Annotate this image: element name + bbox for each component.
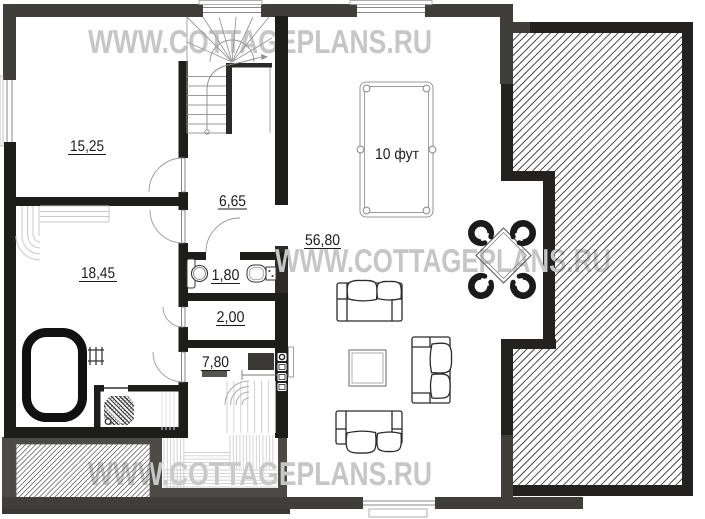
svg-text:6,65: 6,65 [219, 193, 246, 210]
svg-text:1,80: 1,80 [212, 267, 240, 284]
svg-text:15,25: 15,25 [70, 138, 104, 155]
svg-text:10 фут: 10 фут [375, 146, 419, 163]
svg-text:7,80: 7,80 [202, 354, 229, 371]
svg-text:2,00: 2,00 [217, 309, 245, 326]
svg-text:18,45: 18,45 [81, 265, 115, 282]
svg-text:56,80: 56,80 [305, 232, 340, 249]
